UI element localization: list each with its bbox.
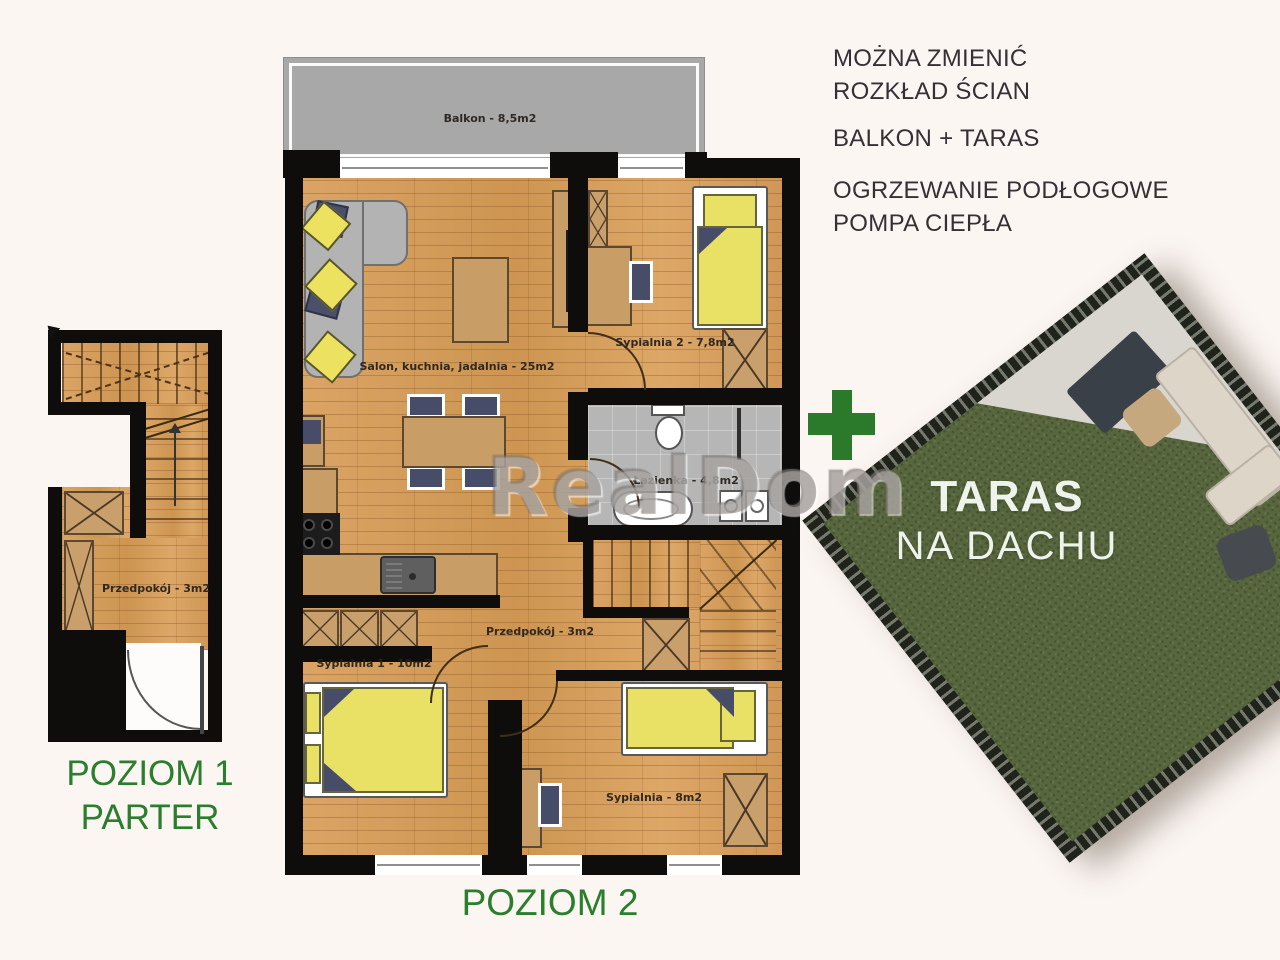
desk-chair — [538, 783, 562, 827]
wall — [125, 730, 208, 742]
stair-arrow-head-icon — [169, 423, 181, 433]
desk-chair — [629, 261, 653, 303]
nightstand — [305, 692, 321, 734]
wall — [685, 152, 707, 178]
nightstand — [305, 744, 321, 784]
wardrobe — [723, 773, 768, 847]
desk — [586, 246, 632, 326]
wardrobe — [642, 618, 690, 672]
kitchen-counter-left — [298, 468, 338, 515]
room-label-przedpokoj-l1: Przedpokój - 3m2 — [102, 582, 210, 595]
watermark: RealDom — [486, 440, 909, 533]
door-leaf — [200, 646, 204, 734]
room-label-sypialnia1: Sypialnia 1 - 10m2 — [316, 657, 431, 670]
level1-title-line2: PARTER — [40, 796, 260, 840]
sink-faucet — [409, 573, 416, 580]
note-heating-line2: POMPA CIEPŁA — [833, 207, 1169, 240]
window — [618, 158, 685, 178]
wardrobe — [64, 540, 94, 632]
window — [375, 855, 482, 875]
room-label-sypialnia2: Sypialnia 2 - 7,8m2 — [615, 336, 734, 349]
level2-stairs-upper — [592, 540, 700, 608]
wall — [208, 330, 222, 742]
burner — [303, 537, 315, 549]
bed-duvet — [322, 687, 444, 793]
window — [340, 158, 550, 178]
level2-title: POZIOM 2 — [430, 882, 670, 924]
room-label-sypialnia8: Sypialnia - 8m2 — [606, 791, 702, 804]
wall — [588, 388, 782, 405]
note-balcony: BALKON + TARAS — [833, 122, 1040, 155]
room-label-przedpokoj-l2: Przedpokój - 3m2 — [486, 625, 594, 638]
wall — [130, 402, 146, 538]
sink-drainboard — [386, 563, 402, 589]
wall — [556, 670, 782, 681]
wall — [295, 595, 500, 608]
level1-title-line1: POZIOM 1 — [40, 752, 260, 796]
dining-chair — [462, 394, 500, 418]
wall — [48, 330, 210, 343]
wardrobe — [588, 190, 608, 248]
note-walls-line1: MOŻNA ZMIENIĆ — [833, 42, 1030, 75]
bed-pillow — [703, 194, 757, 228]
balcony-frame — [289, 63, 699, 157]
coffee-table — [452, 257, 509, 343]
note-heating: OGRZEWANIE PODŁOGOWE POMPA CIEPŁA — [833, 174, 1169, 240]
note-walls: MOŻNA ZMIENIĆ ROZKŁAD ŚCIAN — [833, 42, 1030, 108]
wall — [48, 487, 62, 644]
wall — [550, 152, 618, 178]
wardrobe — [380, 610, 418, 648]
level1-title: POZIOM 1 PARTER — [40, 752, 260, 840]
wall — [285, 158, 303, 875]
burner — [303, 519, 315, 531]
burner — [321, 519, 333, 531]
toilet-tank — [651, 404, 685, 416]
note-heating-line1: OGRZEWANIE PODŁOGOWE — [833, 174, 1169, 207]
floorplan-page: MOŻNA ZMIENIĆ ROZKŁAD ŚCIAN BALKON + TAR… — [0, 0, 1280, 960]
tv-screen — [301, 420, 321, 444]
wall — [568, 176, 588, 332]
wardrobe — [301, 610, 339, 648]
stove — [297, 513, 340, 555]
burner — [321, 537, 333, 549]
wardrobe — [64, 491, 124, 535]
dining-chair — [407, 394, 445, 418]
wardrobe — [340, 610, 379, 648]
kitchen-sink — [380, 556, 436, 594]
wall — [283, 150, 340, 178]
window — [667, 855, 722, 875]
level2-stairs-lower — [700, 610, 776, 672]
room-label-salon: Salon, kuchnia, jadalnia - 25m2 — [360, 360, 555, 373]
wall — [48, 630, 126, 742]
stair-arrow-line — [174, 432, 176, 506]
note-walls-line2: ROZKŁAD ŚCIAN — [833, 75, 1030, 108]
wall — [583, 607, 689, 618]
dining-chair — [407, 466, 445, 490]
window — [527, 855, 582, 875]
terrace-armchair — [1214, 523, 1279, 584]
balcony — [283, 57, 705, 163]
room-label-balkon: Balkon - 8,5m2 — [444, 112, 537, 125]
